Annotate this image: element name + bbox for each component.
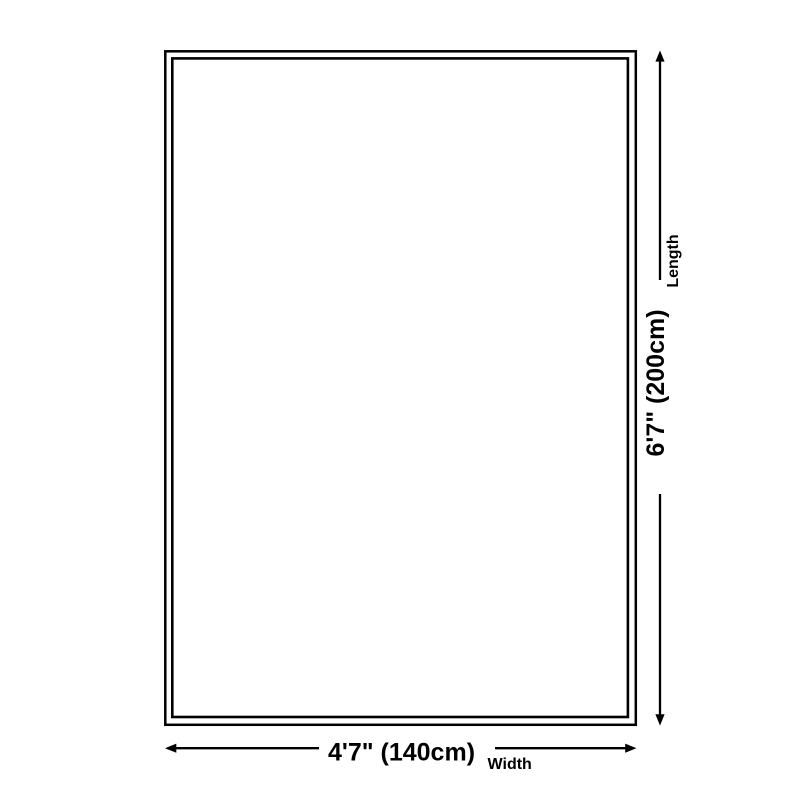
svg-text:6'7" (200cm): 6'7" (200cm) <box>642 309 670 456</box>
svg-text:Length: Length <box>665 234 682 287</box>
svg-text:Width: Width <box>488 756 532 773</box>
svg-text:4'7" (140cm): 4'7" (140cm) <box>328 739 475 767</box>
